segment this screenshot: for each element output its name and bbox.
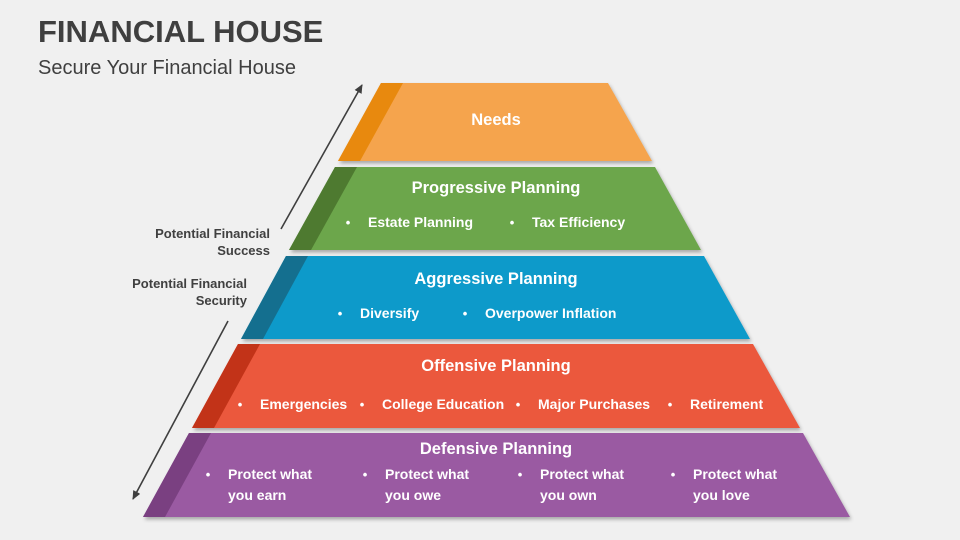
- pyramid-level-progressive: [289, 167, 701, 250]
- pyramid-level-defensive: [143, 433, 850, 517]
- level-progressive-face: [289, 167, 701, 250]
- slide-header: FINANCIAL HOUSE Secure Your Financial Ho…: [38, 14, 323, 80]
- level-defensive-face: [143, 433, 850, 517]
- slide: FINANCIAL HOUSE Secure Your Financial Ho…: [0, 0, 960, 540]
- pyramid-level-offensive: [192, 344, 800, 428]
- label-potential-financial-security: Potential Financial Security: [125, 275, 247, 309]
- pyramid-level-aggressive: [241, 256, 750, 339]
- slide-title: FINANCIAL HOUSE: [38, 14, 323, 50]
- pyramid-graphic: [0, 0, 960, 540]
- level-aggressive-face: [241, 256, 750, 339]
- slide-subtitle: Secure Your Financial House: [38, 56, 323, 80]
- pyramid-level-needs: [338, 83, 652, 161]
- level-offensive-face: [192, 344, 800, 428]
- label-potential-financial-success: Potential Financial Success: [148, 225, 270, 259]
